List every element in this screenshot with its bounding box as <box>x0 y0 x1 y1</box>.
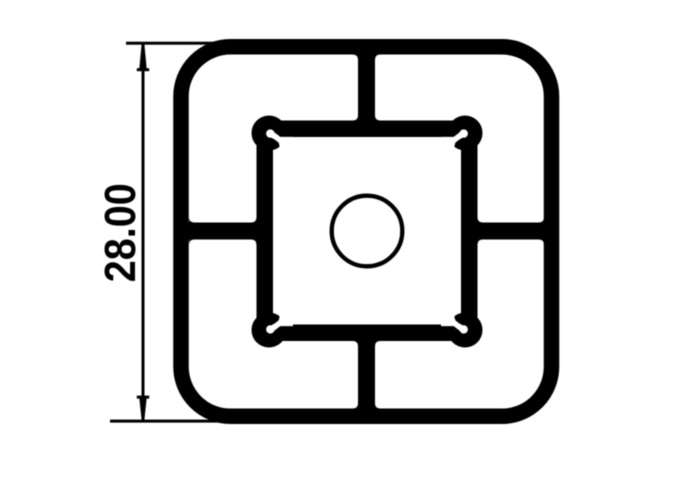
svg-text:28.00: 28.00 <box>97 183 145 282</box>
